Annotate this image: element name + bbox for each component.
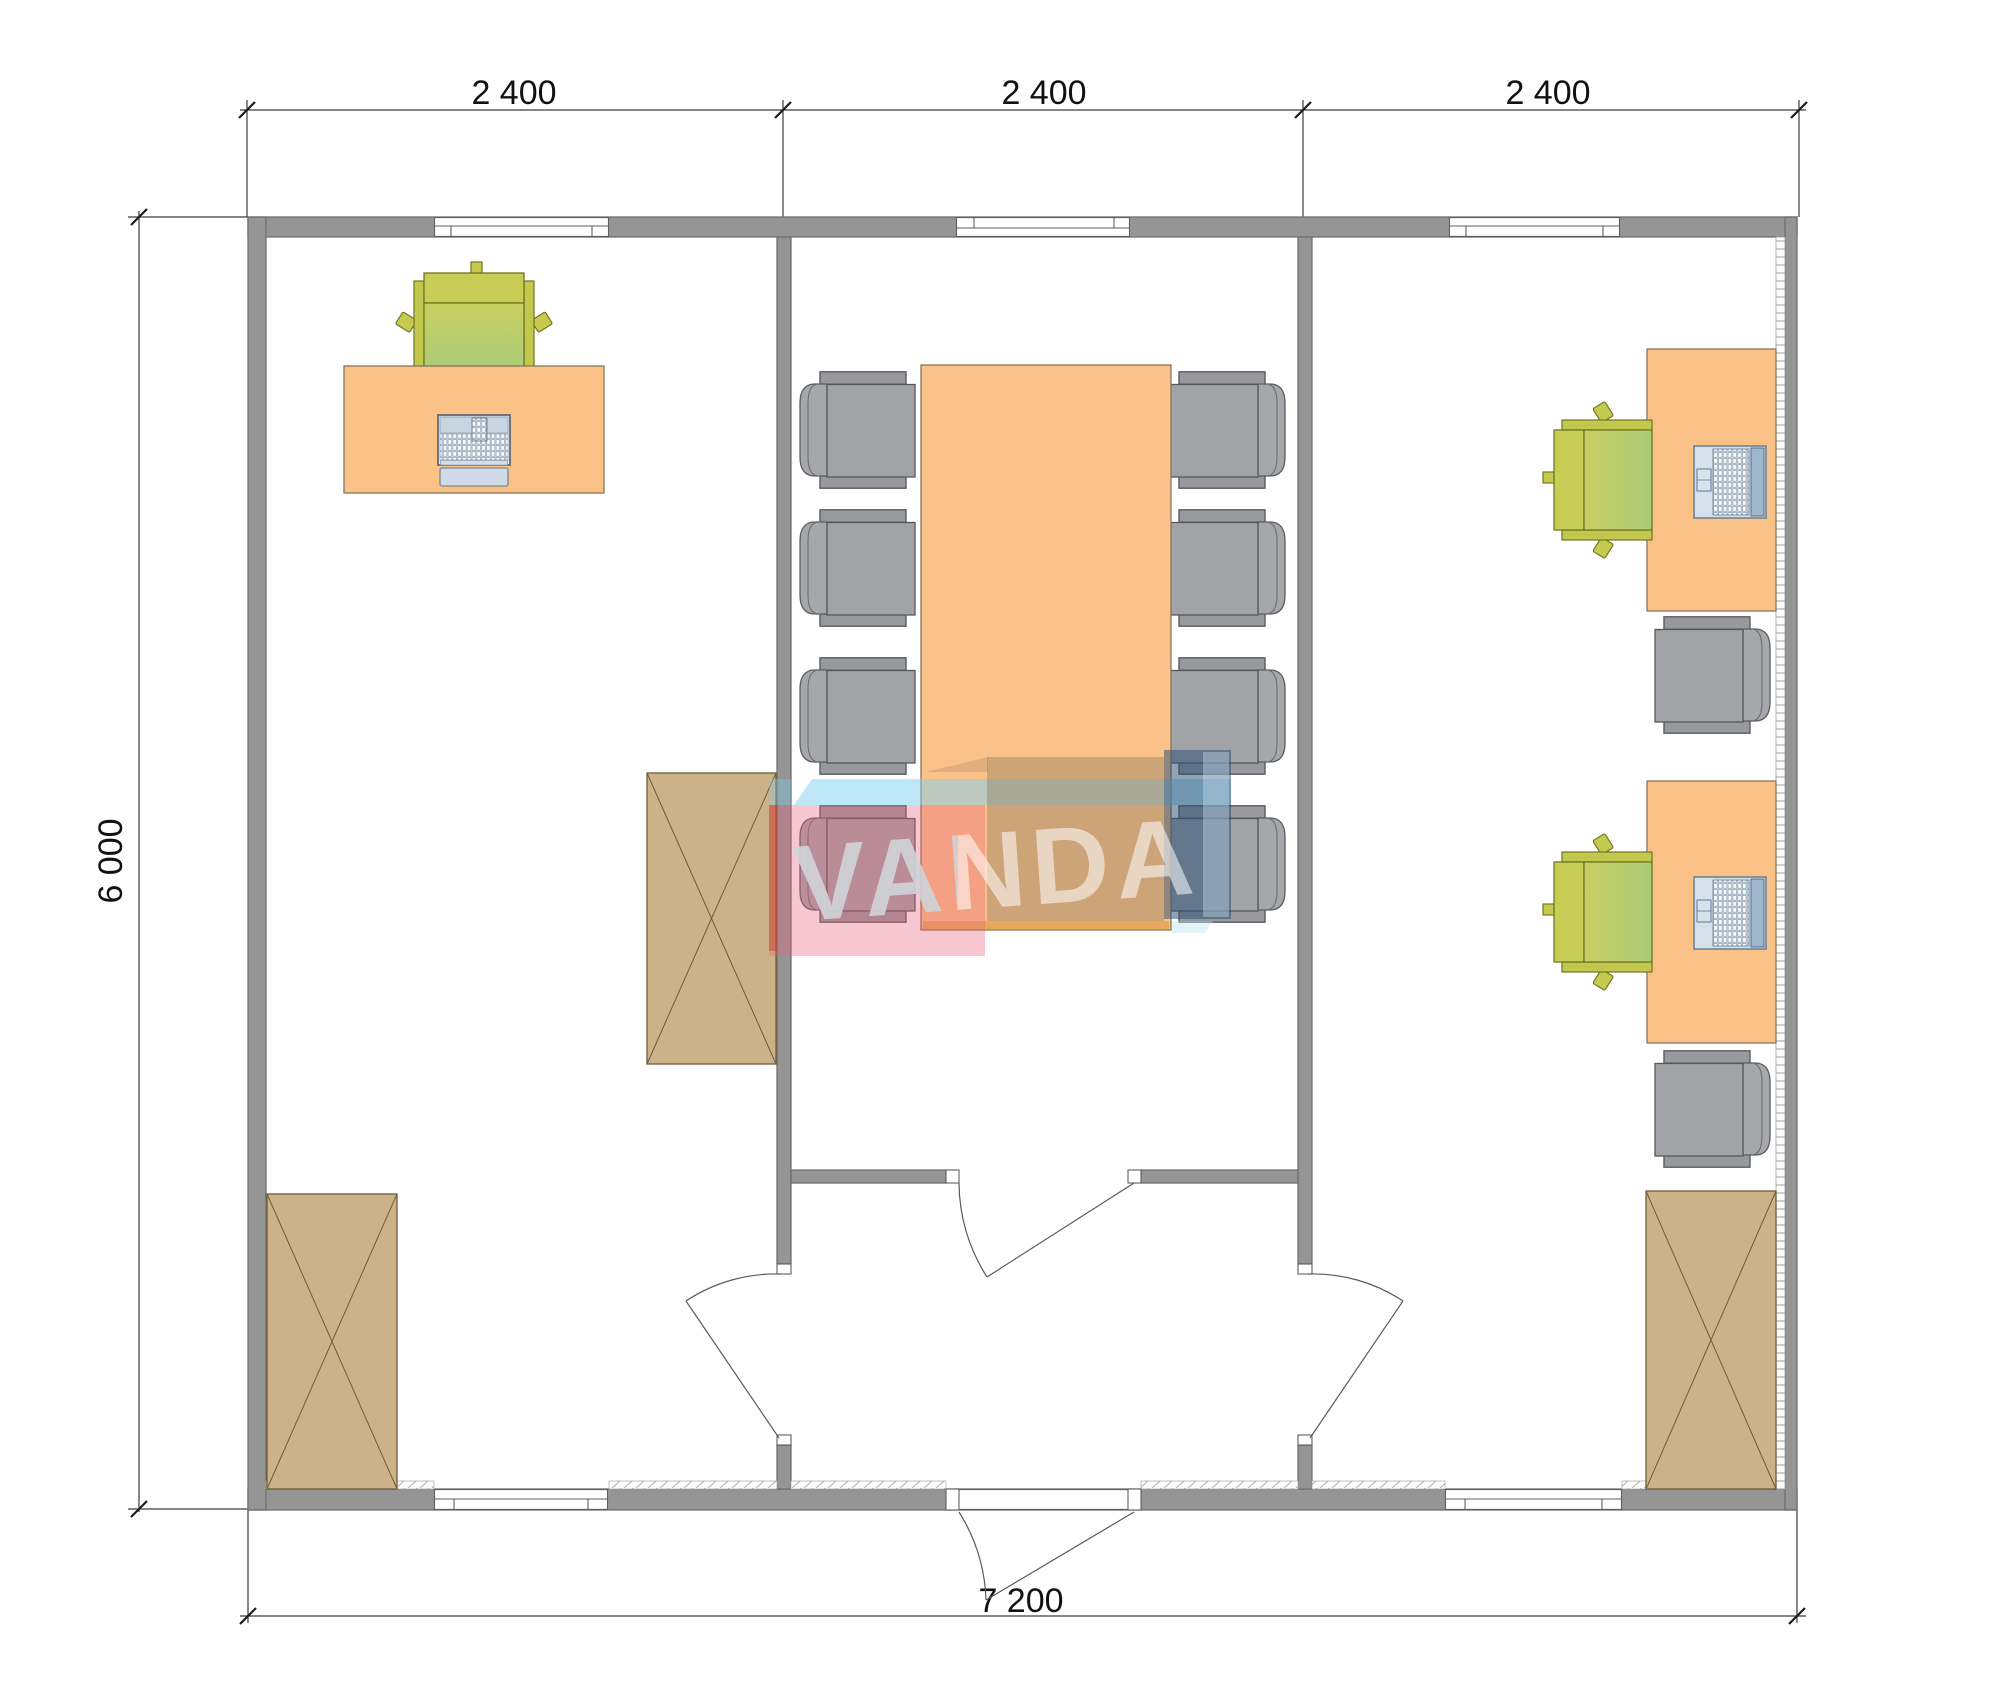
svg-text:2 400: 2 400: [1001, 74, 1086, 112]
svg-text:6 000: 6 000: [92, 818, 130, 903]
svg-text:2 400: 2 400: [1505, 74, 1590, 112]
svg-text:7 200: 7 200: [978, 1582, 1063, 1620]
svg-text:2 400: 2 400: [471, 74, 556, 112]
